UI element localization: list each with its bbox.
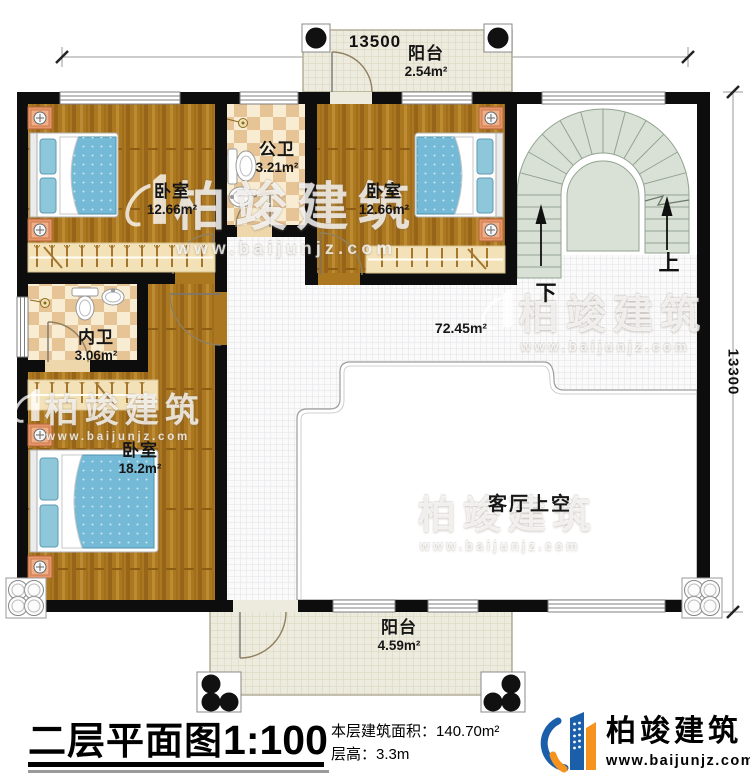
window xyxy=(240,92,298,104)
wall-segment xyxy=(298,92,330,104)
nightstand-icon xyxy=(479,107,503,129)
room-area: 3.21m² xyxy=(256,160,299,176)
window xyxy=(17,297,28,357)
wall-segment xyxy=(305,273,318,285)
room-name: 阳台 xyxy=(381,618,417,638)
wall-segment xyxy=(472,92,542,104)
wall-segment xyxy=(17,600,233,612)
stair-well xyxy=(567,161,639,251)
corner-ornament xyxy=(6,578,46,618)
plan-title: 二层平面图1:100 xyxy=(28,710,328,765)
window xyxy=(548,600,665,612)
wall-segment xyxy=(137,284,148,372)
balcony-bottom-region xyxy=(197,608,525,712)
brand-logo-spacer xyxy=(540,706,598,772)
room-area: 4.59m² xyxy=(378,638,421,654)
sink-icon xyxy=(102,289,124,305)
room-label-inner-bath: 内卫 3.06m² xyxy=(75,328,118,364)
room-name: 卧室 xyxy=(122,441,158,461)
wall-segment xyxy=(17,357,28,612)
corner-ornament xyxy=(682,578,722,618)
wall-segment xyxy=(478,600,548,612)
room-label-public-bath: 公卫 3.21m² xyxy=(256,140,299,176)
floor-height-row: 层高：3.3m xyxy=(331,743,499,766)
nightstand-icon xyxy=(28,556,52,578)
nightstand-icon xyxy=(479,219,503,241)
brand-website: www.baijunjz.com xyxy=(606,753,750,769)
wall-segment xyxy=(298,600,333,612)
dimension-top-value: 13500 xyxy=(349,32,401,52)
room-name: 阳台 xyxy=(408,44,444,64)
room-area: 2.54m² xyxy=(405,64,448,80)
wall-segment xyxy=(215,104,227,272)
wall-segment xyxy=(215,345,227,600)
plan-title-text: 二层平面图 xyxy=(28,721,223,763)
nightstand-icon xyxy=(28,107,52,129)
room-area: 12.66m² xyxy=(359,202,409,218)
hall-corridor-floor xyxy=(227,237,305,600)
window xyxy=(402,92,472,104)
floor-height-label: 层高： xyxy=(331,746,376,763)
plan-specs: 本层建筑面积：140.70m² 层高：3.3m xyxy=(331,720,499,767)
toilet-icon xyxy=(228,149,256,184)
title-underline-secondary xyxy=(28,770,329,773)
room-name: 卧室 xyxy=(154,182,190,202)
bed-icon xyxy=(415,133,503,217)
floor-height-value: 3.3m xyxy=(376,746,409,763)
brand-name: 柏竣建筑 xyxy=(606,706,750,750)
room-area: 3.06m² xyxy=(75,348,118,364)
wall-segment xyxy=(505,104,517,285)
nightstand-icon xyxy=(28,219,52,241)
plan-scale: 1:100 xyxy=(223,717,328,763)
room-label-living-void: 客厅上空 xyxy=(488,494,572,516)
building-area-row: 本层建筑面积：140.70m² xyxy=(331,720,499,743)
wall-segment xyxy=(697,92,710,612)
room-label-bedroom2: 卧室 12.66m² xyxy=(359,182,409,218)
stair-down-label: 下 xyxy=(536,277,557,307)
room-label-balcony-bottom: 阳台 4.59m² xyxy=(378,618,421,654)
wall-segment xyxy=(215,284,227,292)
window xyxy=(60,92,180,104)
wall-segment xyxy=(395,600,428,612)
floorplan-page: 13500 13300 阳台 2.54m² 卧室 12.66m² 公卫 3.21… xyxy=(0,0,750,780)
wardrobe-icon xyxy=(366,246,505,273)
room-area: 12.66m² xyxy=(147,202,197,218)
column-base xyxy=(197,672,241,712)
room-name: 客厅上空 xyxy=(488,494,572,516)
floorplan-drawing xyxy=(0,0,750,780)
brand-block: 柏竣建筑 www.baijunjz.com xyxy=(540,706,750,772)
window xyxy=(542,92,665,104)
title-underline xyxy=(28,762,324,767)
room-label-hall: 72.45m² xyxy=(435,320,487,337)
wall-segment xyxy=(180,92,240,104)
building-area-value: 140.70m² xyxy=(436,723,499,740)
room-name: 内卫 xyxy=(78,328,114,348)
room-name: 卧室 xyxy=(366,182,402,202)
wardrobe-icon xyxy=(28,243,215,272)
room-area: 72.45m² xyxy=(435,320,487,337)
stair-up-label: 上 xyxy=(659,247,680,277)
bed-icon xyxy=(30,133,118,217)
building-area-label: 本层建筑面积： xyxy=(331,723,436,740)
room-name: 公卫 xyxy=(259,140,295,160)
wall-segment xyxy=(215,225,237,237)
room-label-bedroom3: 卧室 18.2m² xyxy=(119,441,162,477)
wall-segment xyxy=(17,272,175,284)
nightstand-icon xyxy=(28,424,52,446)
sink-icon xyxy=(229,187,253,207)
room-area: 18.2m² xyxy=(119,461,162,477)
brand-text: 柏竣建筑 www.baijunjz.com xyxy=(606,706,750,769)
wall-segment xyxy=(28,360,45,372)
window xyxy=(428,600,478,612)
wall-segment xyxy=(17,92,28,297)
wall-segment xyxy=(372,92,402,104)
dimension-right-value: 13300 xyxy=(725,349,742,396)
wall-segment xyxy=(272,225,317,237)
living-void-region xyxy=(297,362,697,600)
wall-segment xyxy=(360,273,517,285)
room-label-balcony-top: 阳台 2.54m² xyxy=(405,44,448,80)
wall-segment xyxy=(305,104,317,285)
window xyxy=(333,600,395,612)
column-base xyxy=(481,672,525,712)
wall-segment xyxy=(215,272,227,284)
room-label-bedroom1: 卧室 12.66m² xyxy=(147,182,197,218)
wardrobe-icon xyxy=(28,380,158,410)
